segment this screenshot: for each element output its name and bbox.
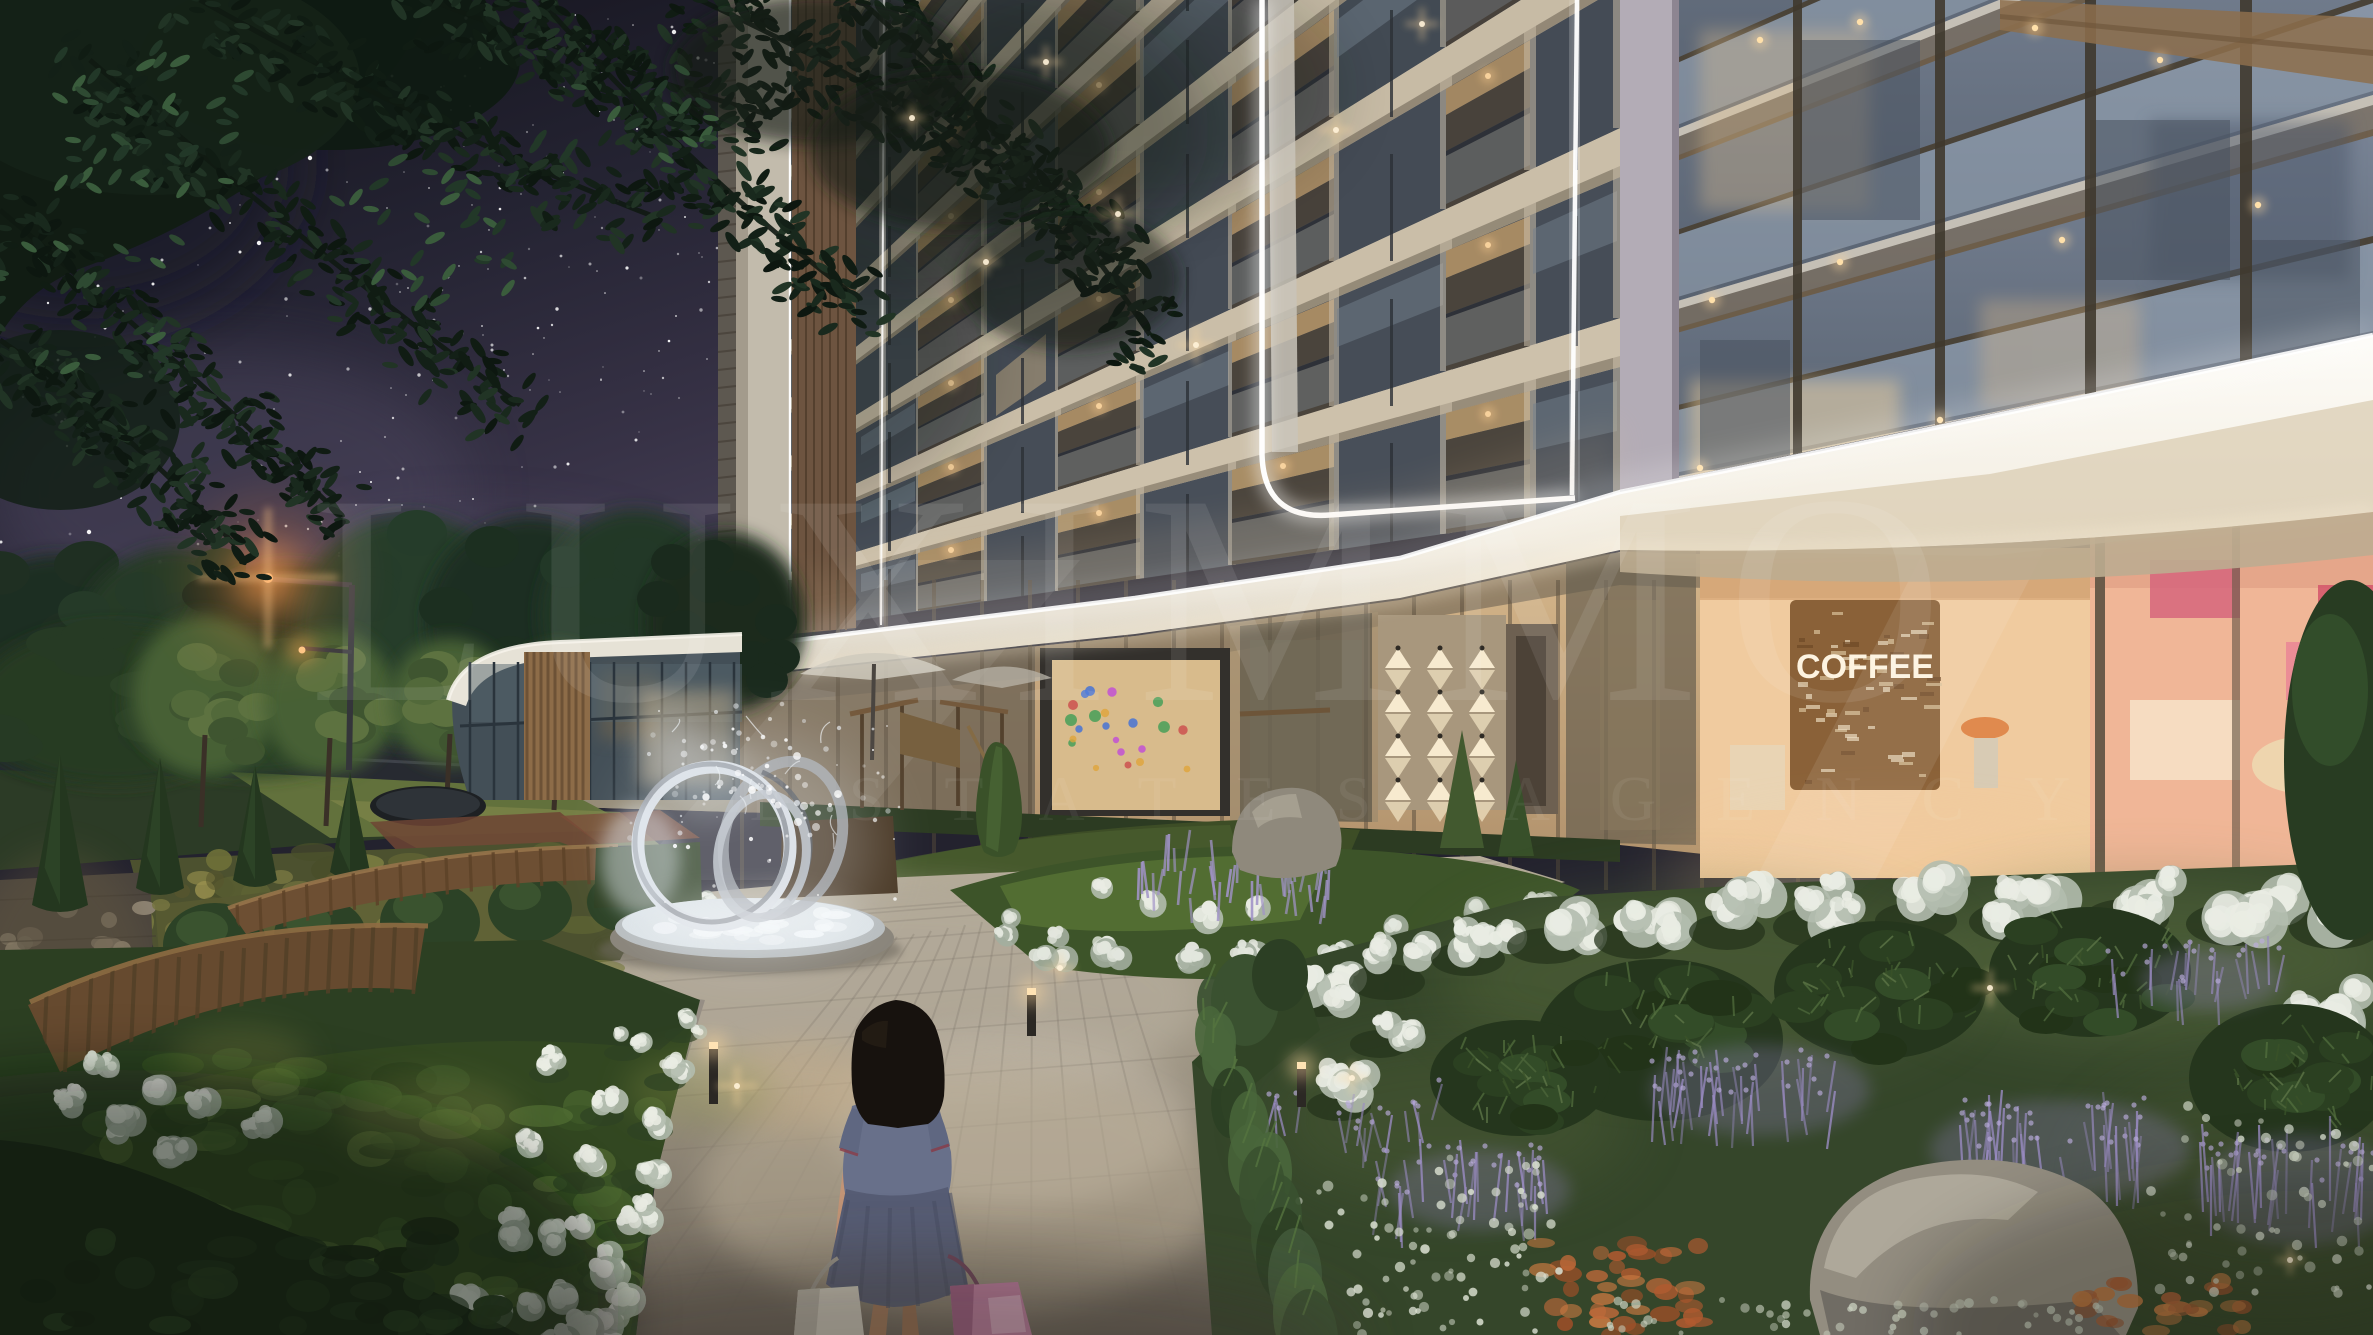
- svg-text:LUXIMMO: LUXIMMO: [309, 433, 1972, 765]
- svg-text:ESTATES AGENCY: ESTATES AGENCY: [750, 763, 2131, 834]
